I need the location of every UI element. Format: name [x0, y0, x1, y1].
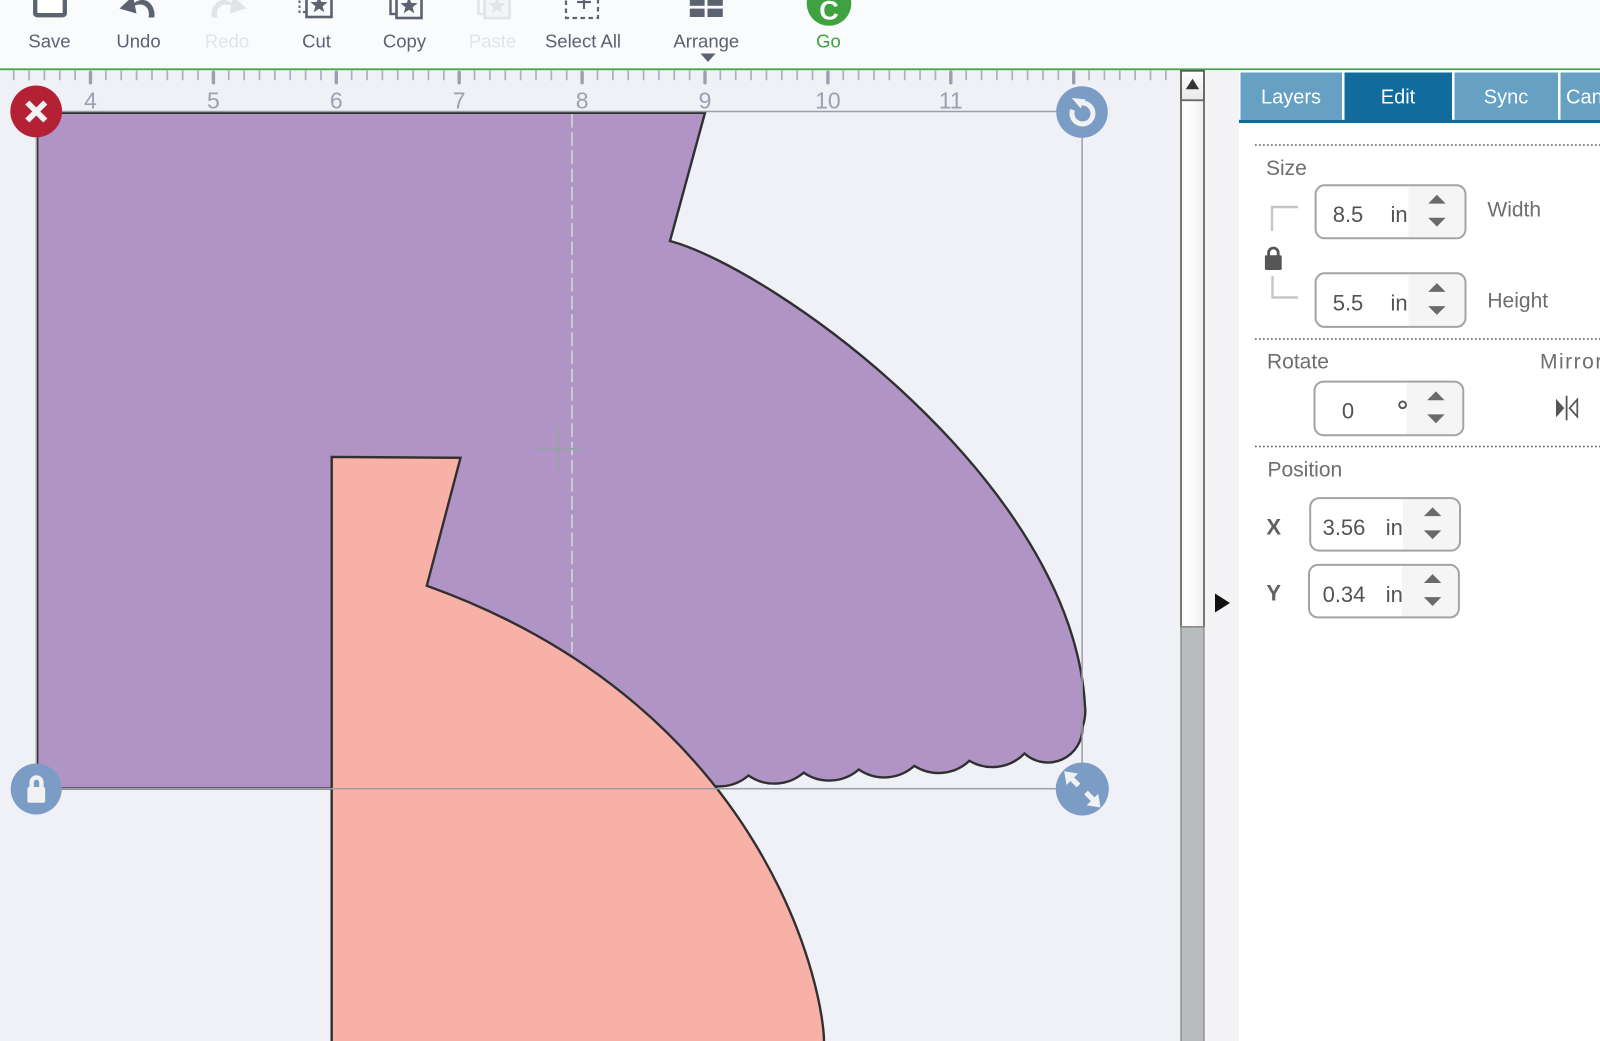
svg-text:7: 7: [453, 88, 466, 114]
svg-text:X: X: [1266, 515, 1281, 540]
svg-text:11: 11: [939, 88, 963, 114]
svg-text:Redo: Redo: [205, 31, 249, 52]
svg-text:Go: Go: [816, 31, 841, 52]
svg-text:Width: Width: [1487, 199, 1541, 222]
svg-text:Position: Position: [1268, 459, 1343, 482]
svg-text:Cut: Cut: [302, 31, 331, 52]
svg-text:in: in: [1390, 202, 1407, 227]
svg-text:8.5: 8.5: [1333, 202, 1364, 227]
svg-text:Rotate: Rotate: [1267, 351, 1329, 374]
svg-text:Size: Size: [1266, 157, 1307, 180]
svg-text:0: 0: [1342, 399, 1354, 424]
svg-text:9: 9: [699, 88, 712, 114]
svg-text:Mirror: Mirror: [1540, 351, 1600, 374]
svg-text:Paste: Paste: [469, 31, 516, 52]
svg-text:5.5: 5.5: [1333, 291, 1364, 316]
svg-text:Sync: Sync: [1484, 87, 1528, 109]
svg-text:Edit: Edit: [1381, 87, 1416, 109]
svg-text:Undo: Undo: [116, 31, 160, 52]
svg-text:Layers: Layers: [1261, 87, 1321, 109]
svg-text:in: in: [1386, 582, 1403, 607]
svg-text:10: 10: [815, 88, 841, 114]
svg-text:Arrange: Arrange: [673, 31, 739, 52]
svg-text:C: C: [819, 0, 839, 26]
svg-text:in: in: [1390, 291, 1407, 316]
svg-text:Height: Height: [1487, 290, 1548, 313]
svg-text:4: 4: [84, 88, 97, 114]
svg-text:Copy: Copy: [383, 31, 427, 52]
svg-text:3.56: 3.56: [1323, 515, 1366, 540]
svg-text:8: 8: [576, 88, 589, 114]
svg-text:Can: Can: [1566, 87, 1600, 109]
svg-text:0.34: 0.34: [1323, 582, 1366, 607]
svg-text:6: 6: [330, 88, 343, 114]
svg-text:Y: Y: [1266, 581, 1281, 606]
svg-text:5: 5: [207, 88, 220, 114]
svg-text:in: in: [1386, 515, 1403, 540]
svg-text:Save: Save: [28, 31, 70, 52]
svg-text:Select All: Select All: [545, 31, 621, 52]
